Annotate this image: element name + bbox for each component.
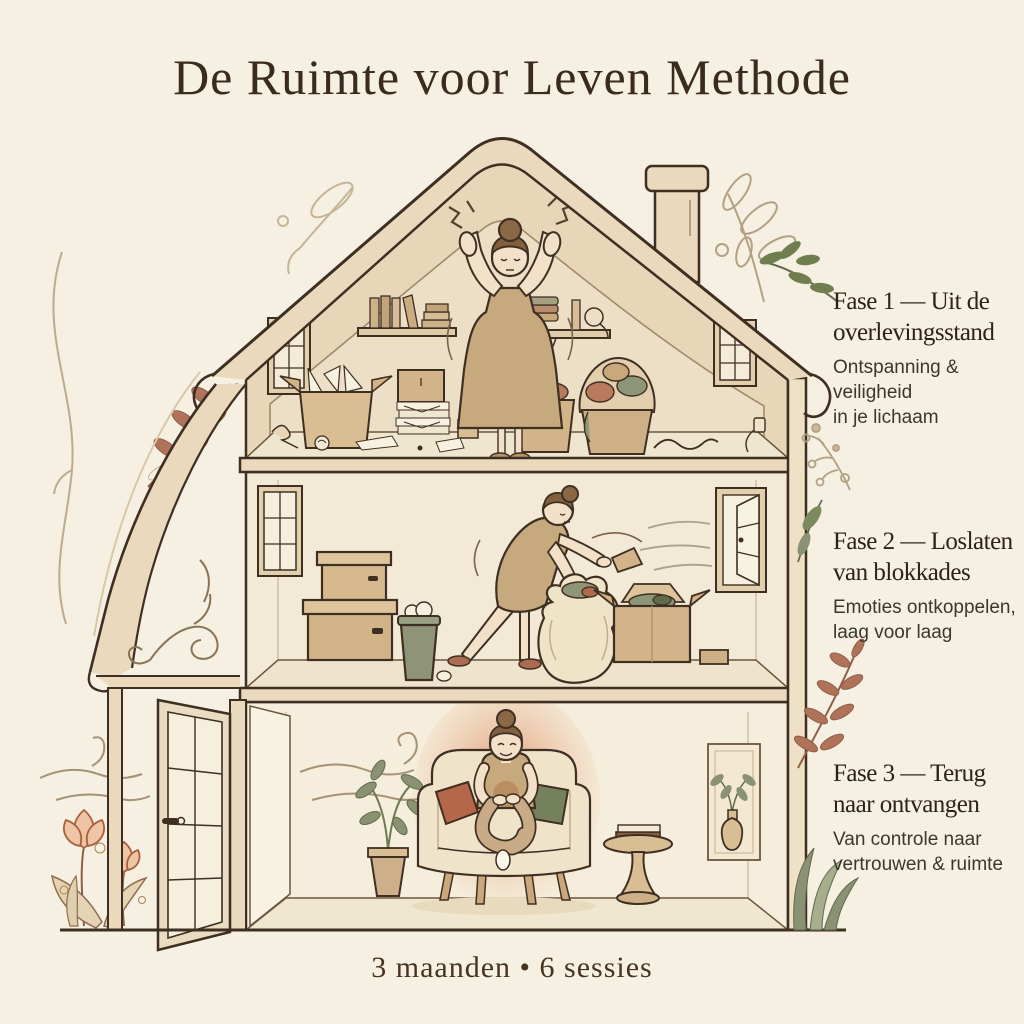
duration-text: 3 maanden • 6 sessies [0, 951, 1024, 985]
phase-3-block: Fase 3 — Terug naar ontvangen Van contro… [833, 758, 1024, 877]
phase-3-heading: Fase 3 — Terug naar ontvangen [833, 758, 1024, 820]
declutter-bag [538, 574, 618, 682]
open-door [158, 700, 230, 950]
phase-2-block: Fase 2 — Loslaten van blokkades Emoties … [833, 526, 1024, 645]
ground-room [246, 688, 788, 930]
green-sprig-top-right [758, 238, 838, 302]
phase-1-subtitle: Ontspanning & veiligheid in je lichaam [833, 355, 1024, 430]
phase-1-heading: Fase 1 — Uit de overlevingsstand [833, 286, 1024, 348]
phase-2-heading: Fase 2 — Loslaten van blokkades [833, 526, 1024, 588]
berry-branch-right [803, 424, 851, 490]
top-right-leaf-outline [716, 170, 798, 302]
middle-room [246, 472, 788, 688]
poster: { "title": "De Ruimte voor Leven Methode… [0, 0, 1024, 1024]
alcove-vase [708, 744, 760, 860]
right-eave-curl [804, 374, 830, 417]
door-handle [162, 818, 179, 824]
right-wall [788, 378, 806, 930]
left-wall-post [108, 688, 122, 930]
middle-window-left [258, 486, 302, 576]
phase-3-subtitle: Van controle naar vertrouwen & ruimte [833, 827, 1024, 877]
breeze-outside-door [40, 737, 150, 800]
left-vine-swirl [53, 252, 72, 624]
phase-2-subtitle: Emoties ontkoppelen, laag voor laag [833, 595, 1024, 645]
door-frame-post [230, 700, 246, 930]
flowers-bottom-left [52, 810, 146, 928]
page-title: De Ruimte voor Leven Methode [0, 48, 1024, 106]
phase-1-block: Fase 1 — Uit de overlevingsstand Ontspan… [833, 286, 1024, 430]
